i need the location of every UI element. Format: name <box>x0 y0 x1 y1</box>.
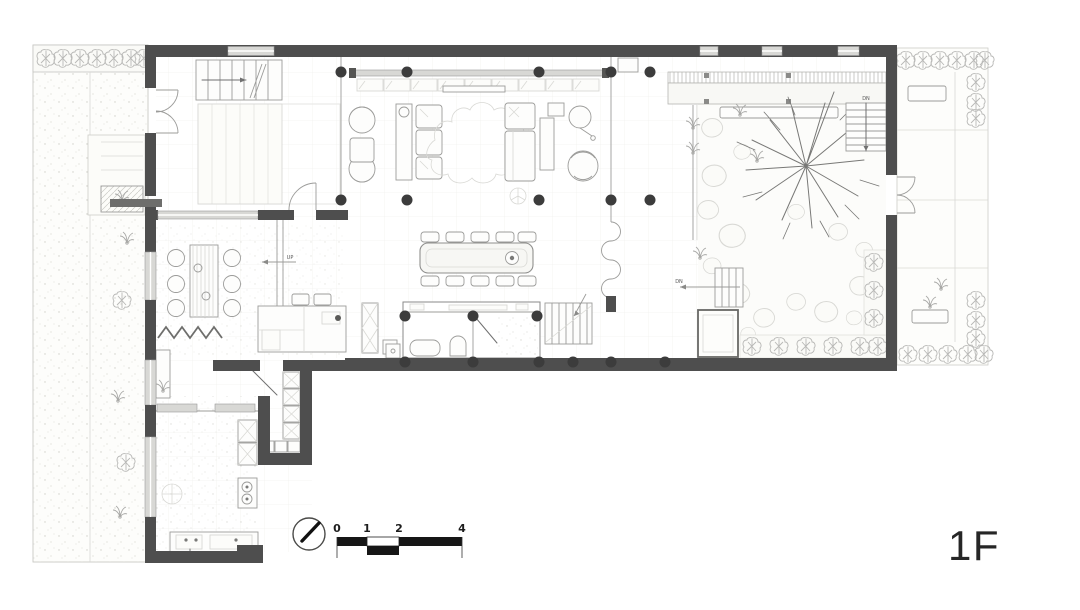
entry-threshold <box>110 199 162 207</box>
courtyard-bench <box>720 107 838 118</box>
stove <box>238 478 257 508</box>
garden-bench-top <box>908 86 946 101</box>
ceiling-fan-symbol <box>162 484 182 504</box>
tea-table <box>190 245 218 317</box>
swivel-chair <box>568 151 598 181</box>
floor-plan-drawing: DN DN <box>0 0 1080 610</box>
floor-label: 1F <box>948 522 1000 569</box>
sofa-group-left <box>396 104 442 180</box>
courtyard-deck <box>668 72 886 104</box>
scale-tick-1: 1 <box>363 522 371 535</box>
lounge-chairs-left <box>349 107 375 182</box>
floor-plan-page: DN DN <box>0 0 1080 610</box>
bathroom <box>386 302 540 358</box>
stair-label-up: UP <box>287 255 294 261</box>
dining-area <box>420 232 536 286</box>
scale-bar: 0 1 2 4 <box>333 522 466 558</box>
tall-cabinet <box>362 303 378 353</box>
south-wall <box>345 358 897 371</box>
stair-down-right: DN <box>846 96 886 151</box>
scale-tick-4: 4 <box>458 522 466 535</box>
courtyard: DN DN <box>668 72 887 358</box>
stair-label-dn-court: DN <box>675 279 683 285</box>
courtyard-planter <box>698 310 738 357</box>
window-bench <box>357 79 599 92</box>
stair-label-dn-right: DN <box>862 96 870 102</box>
curtain-wall-window <box>352 70 608 76</box>
scale-tick-0: 0 <box>333 522 341 535</box>
right-garden <box>897 48 994 365</box>
foyer-stair <box>196 60 282 100</box>
bathtub <box>410 340 440 356</box>
left-garden <box>33 45 153 562</box>
toilet <box>450 336 466 356</box>
scale-tick-2: 2 <box>395 522 403 535</box>
north-arrow <box>293 518 325 550</box>
kitchen-tile-texture <box>156 396 256 550</box>
